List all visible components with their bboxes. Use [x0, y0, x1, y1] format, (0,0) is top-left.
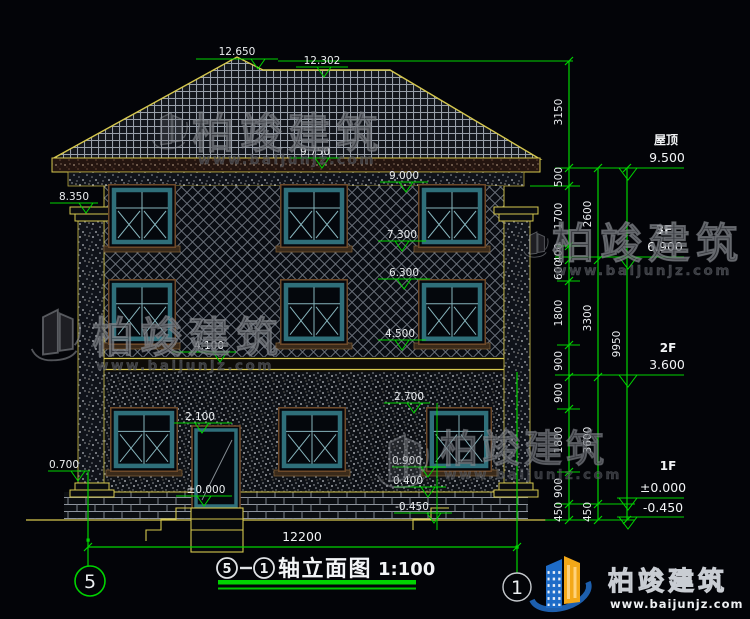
svg-text:www.baijunjz.com: www.baijunjz.com	[198, 152, 376, 168]
svg-text:1F: 1F	[660, 459, 677, 473]
title-text: 轴立面图	[278, 556, 372, 582]
plinth	[64, 492, 528, 519]
cad-elevation-drawing: 3150 500 1700 400 600 1800 900 900 1800 …	[0, 0, 750, 619]
floor-label-2f: 2F 3.600	[619, 341, 685, 387]
svg-text:5: 5	[84, 571, 96, 593]
svg-text:屋顶: 屋顶	[654, 133, 678, 147]
window	[109, 185, 176, 248]
svg-text:柏竣建筑: 柏竣建筑	[552, 219, 744, 268]
dim-text: 3300	[582, 305, 594, 332]
drawing-title: 5 1 轴立面图 1:100	[217, 556, 435, 590]
svg-text:www.baijunjz.com: www.baijunjz.com	[96, 358, 274, 374]
title-axis-right: 1	[259, 562, 268, 577]
svg-text:www.baijunjz.com: www.baijunjz.com	[444, 467, 622, 483]
cornice-band	[68, 172, 524, 186]
svg-text:-0.450: -0.450	[643, 500, 683, 515]
watermark-left: 柏竣建筑 www.baijunjz.com	[32, 310, 284, 374]
windows-3f	[104, 185, 490, 252]
svg-text:柏竣建筑: 柏竣建筑	[440, 427, 608, 471]
svg-text:±0.000: ±0.000	[640, 480, 686, 495]
dim-text-total-height: 9950	[611, 331, 623, 358]
title-axis-left: 5	[222, 562, 231, 577]
svg-text:9.500: 9.500	[649, 150, 685, 165]
window	[419, 280, 486, 345]
window	[419, 185, 486, 248]
window	[281, 185, 348, 248]
dim-text: 900	[553, 383, 565, 403]
dim-text: 900	[553, 351, 565, 371]
dim-text: 450	[553, 502, 565, 522]
title-underline	[218, 580, 416, 585]
svg-text:4.500: 4.500	[385, 328, 415, 340]
svg-text:±0.000: ±0.000	[187, 484, 226, 496]
entry-door	[192, 426, 240, 509]
site-logo: 柏竣建筑 www.baijunjz.com	[532, 556, 743, 611]
watermark-right: 柏竣建筑 www.baijunjz.com	[524, 219, 744, 279]
svg-text:8.350: 8.350	[59, 191, 89, 203]
svg-text:9.000: 9.000	[389, 170, 419, 182]
svg-text:12.302: 12.302	[304, 55, 341, 67]
drawing-canvas: 3150 500 1700 400 600 1800 900 900 1800 …	[0, 0, 750, 619]
svg-text:2F: 2F	[660, 341, 677, 355]
floor-label-roof: 屋顶 9.500	[619, 133, 685, 180]
svg-text:1: 1	[511, 577, 523, 599]
window	[111, 408, 178, 472]
dim-text-total-width: 12200	[282, 529, 322, 544]
axis-bubble-right: 1	[503, 573, 531, 601]
dim-text: 500	[553, 167, 565, 187]
dim-text: 450	[582, 502, 594, 522]
dim-text: 1800	[553, 300, 565, 327]
dim-text: 3150	[553, 99, 565, 126]
svg-text:6.300: 6.300	[389, 267, 419, 279]
svg-text:柏竣建筑: 柏竣建筑	[92, 313, 284, 362]
svg-text:柏竣建筑: 柏竣建筑	[192, 109, 384, 158]
svg-text:7.300: 7.300	[387, 229, 417, 241]
svg-text:0.700: 0.700	[49, 459, 79, 471]
axis-bubble-left: 5	[75, 566, 105, 596]
svg-text:2.100: 2.100	[185, 411, 215, 423]
svg-text:www.baijunjz.com: www.baijunjz.com	[554, 263, 732, 279]
logo-buildings-icon	[546, 556, 580, 608]
window	[279, 408, 346, 472]
svg-text:12.650: 12.650	[219, 46, 256, 58]
window	[281, 280, 348, 345]
title-scale: 1:100	[378, 559, 435, 580]
svg-text:3.600: 3.600	[649, 357, 685, 372]
logo-text: 柏竣建筑	[608, 566, 728, 597]
logo-url: www.baijunjz.com	[610, 597, 743, 611]
svg-text:-0.450: -0.450	[395, 501, 429, 513]
title-underline-thin	[218, 588, 416, 590]
svg-text:2.700: 2.700	[394, 391, 424, 403]
watermark-logo-icon	[32, 310, 80, 361]
